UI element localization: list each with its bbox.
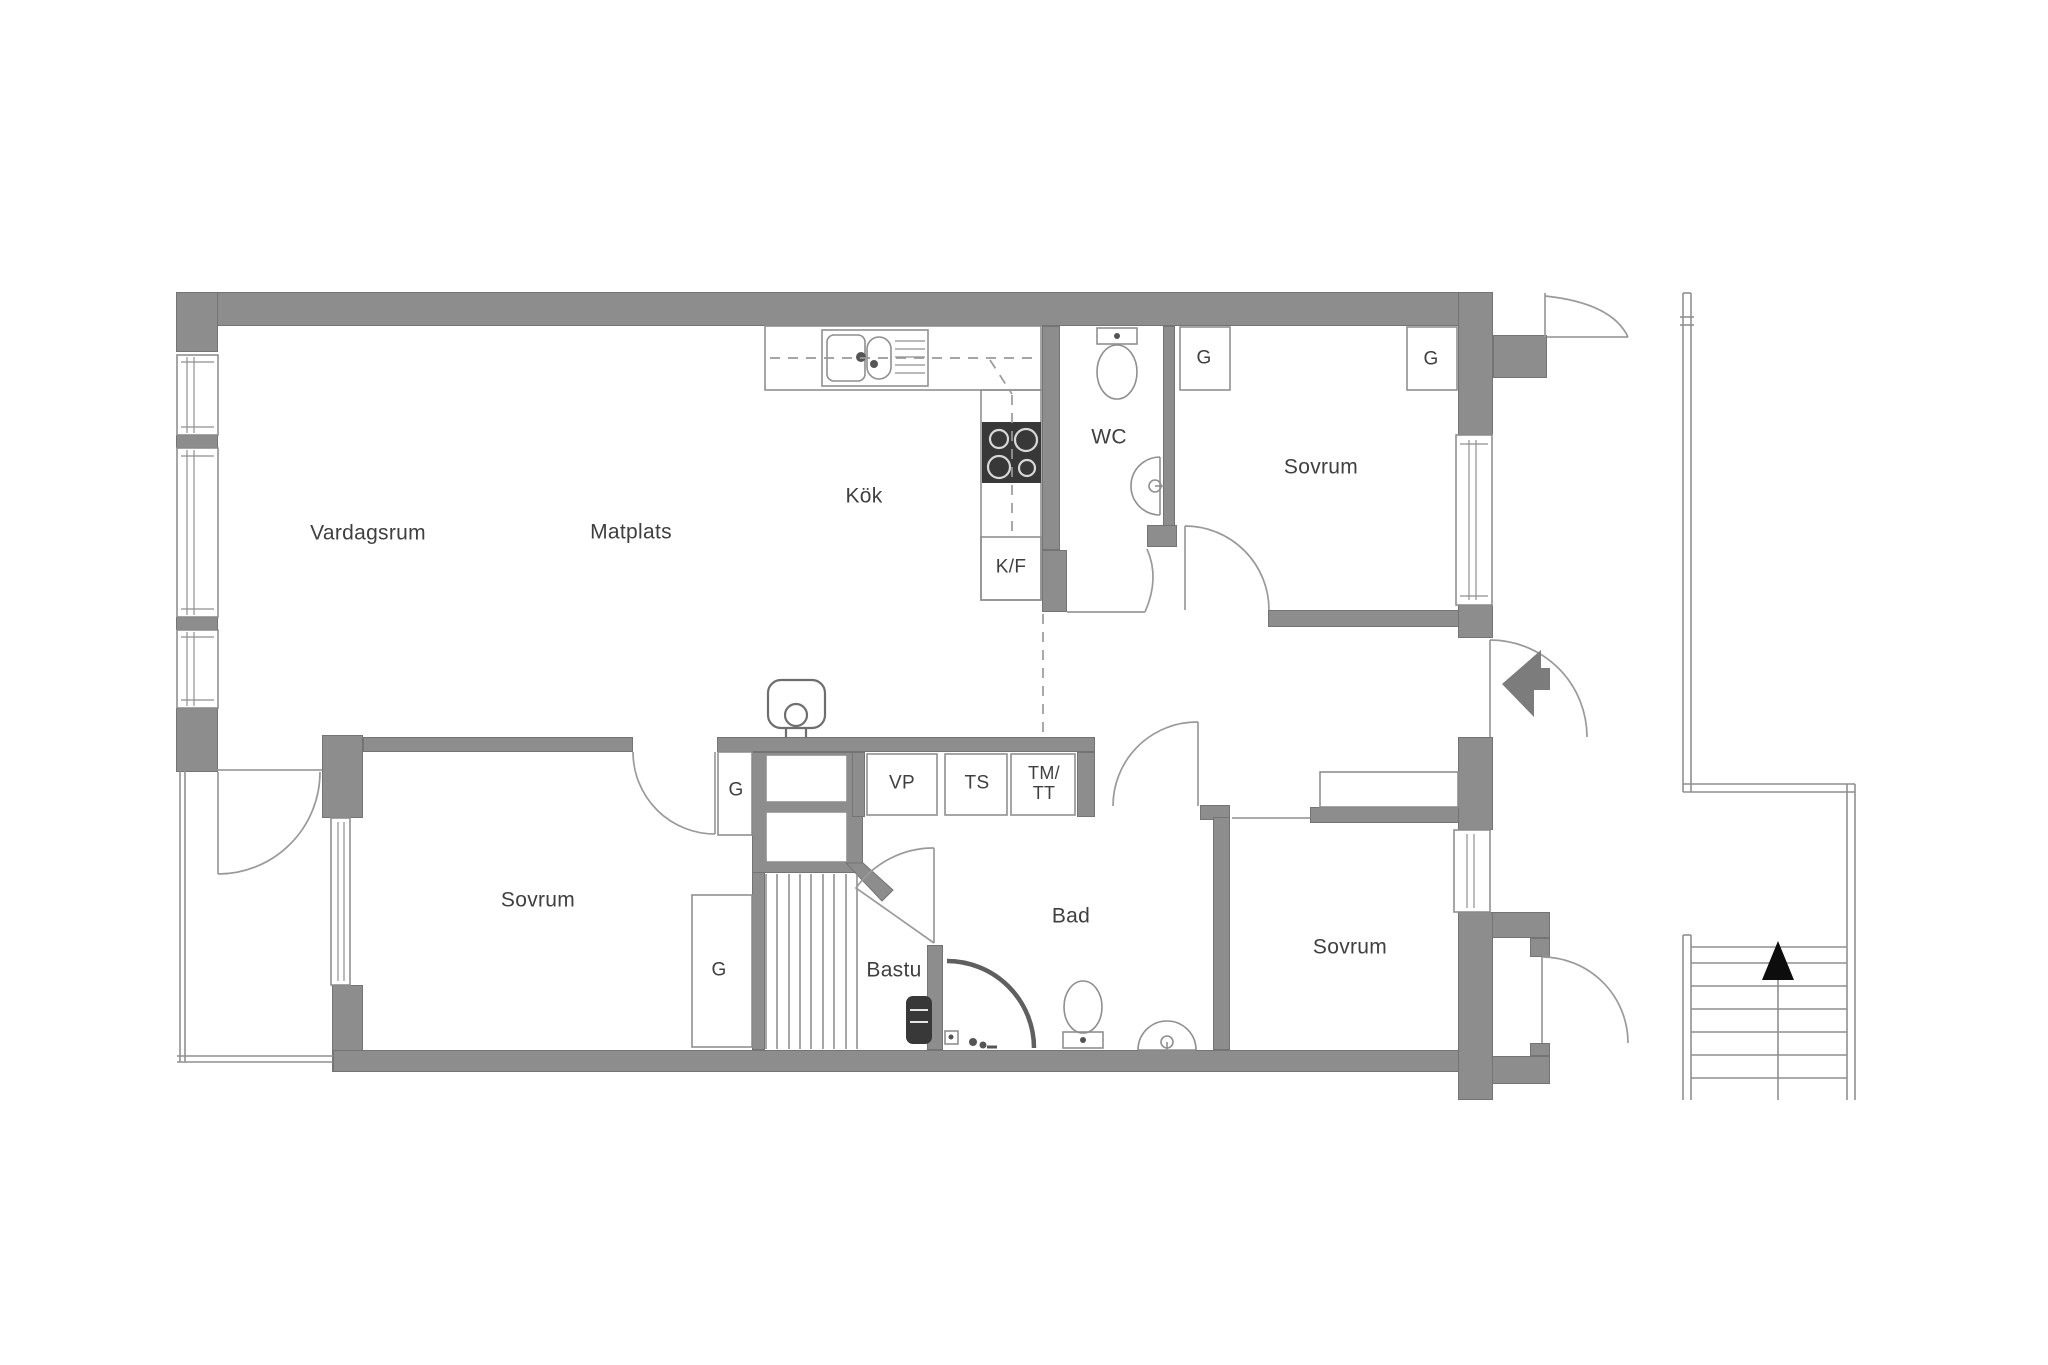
room-label-wc: WC [1091, 425, 1127, 448]
stairs-icon [1683, 935, 1847, 1100]
window [1454, 830, 1490, 912]
appliance-label-vp: VP [889, 774, 915, 795]
room-label-bad: Bad [1052, 904, 1090, 927]
room-label-bastu: Bastu [866, 958, 921, 981]
window [177, 630, 218, 708]
wall-diagonal [846, 863, 893, 901]
toilet-icon [1063, 981, 1103, 1048]
window [177, 448, 218, 617]
appliance-label-kf: K/F [996, 558, 1026, 579]
sink-icon [822, 330, 928, 386]
appliance-label-tmtt: TM/ TT [1028, 763, 1060, 803]
washbasin-icon [1131, 457, 1166, 515]
closet-label-g-ne-right: G [1423, 350, 1438, 371]
closet-outline [1320, 772, 1458, 807]
room-label-kok: Kök [845, 484, 882, 507]
washbasin-icon [1138, 1021, 1196, 1052]
appliance-label-tm-line: TM/ [1028, 763, 1060, 783]
balcony-railing [177, 765, 333, 1062]
door-swing [218, 772, 320, 874]
room-label-matplats: Matplats [590, 520, 672, 543]
closet-label-g-hall: G [728, 781, 743, 802]
fireplace-icon [768, 680, 825, 737]
room-label-sovrum-se: Sovrum [1313, 935, 1387, 958]
door-swing [1067, 549, 1153, 612]
door-swing [1113, 722, 1198, 806]
window [331, 818, 350, 985]
door-swing [856, 848, 934, 943]
room-label-sovrum-ne: Sovrum [1284, 455, 1358, 478]
room-label-vardagsrum: Vardagsrum [310, 521, 426, 544]
door-swing [1545, 293, 1628, 337]
window [177, 355, 218, 435]
appliance-label-tt-line: TT [1033, 783, 1056, 803]
closet-label-g-sw: G [711, 961, 726, 982]
closet-label-g-ne-left: G [1196, 349, 1211, 370]
shower-icon [945, 961, 1034, 1049]
appliance-label-ts: TS [965, 774, 990, 795]
plan-linework [0, 0, 2048, 1365]
sauna-heater-icon [906, 996, 932, 1044]
sauna-bench-icon [766, 874, 857, 1049]
entry-arrow-icon [1502, 650, 1550, 717]
room-label-sovrum-sw: Sovrum [501, 888, 575, 911]
toilet-icon [1097, 328, 1137, 399]
door-swing [1185, 526, 1269, 610]
door-swing [633, 752, 715, 834]
shaft-boxes [766, 755, 847, 862]
floor-plan: Vardagsrum Matplats Kök WC Sovrum Sovrum… [0, 0, 2048, 1365]
window [1456, 435, 1492, 605]
door-swing [1542, 957, 1628, 1043]
